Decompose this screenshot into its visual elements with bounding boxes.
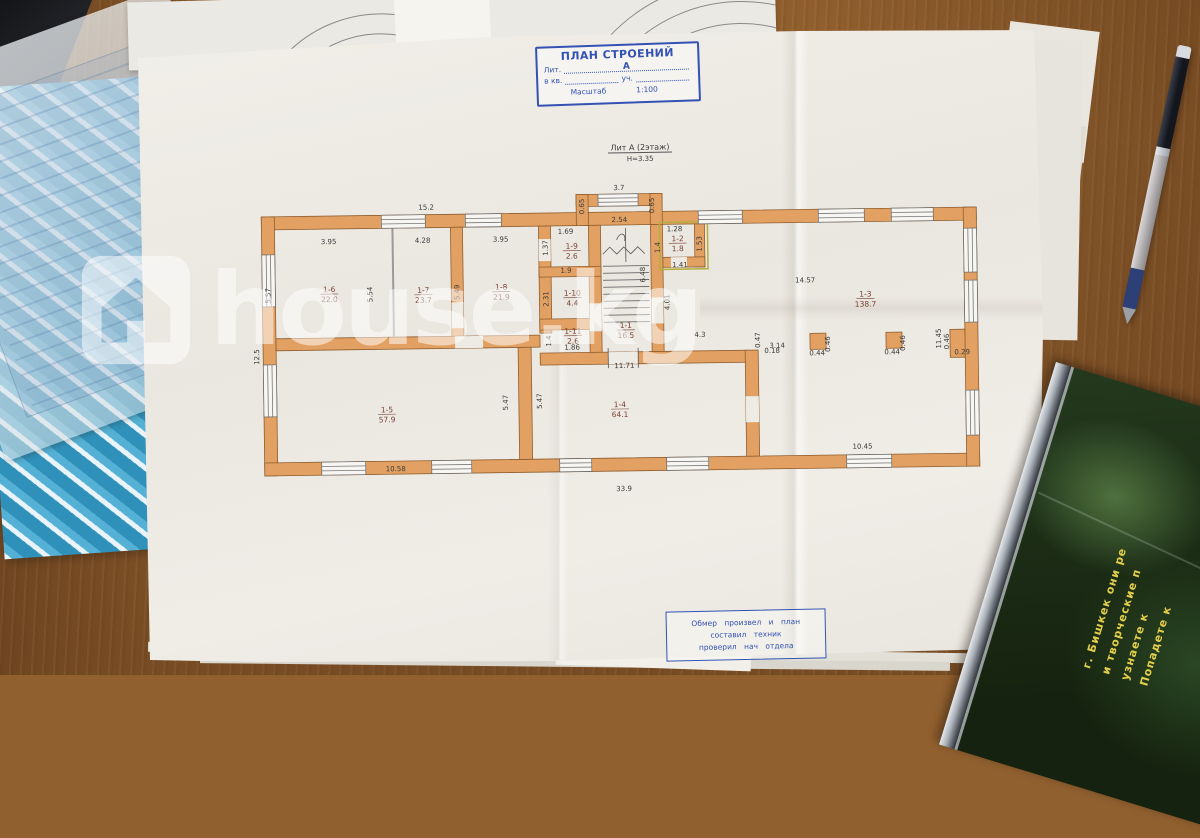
surveyor-line: проверил нач отдела (699, 640, 794, 654)
fold-crease (548, 330, 568, 660)
plan-heading: Лит А (2этаж) Н=3.35 (583, 134, 697, 164)
pen-cap (1157, 56, 1190, 149)
surveyor-block: Обмер произвел и план составил техник пр… (665, 608, 826, 661)
ballpoint-pen (1119, 45, 1192, 326)
fold-crease (700, 296, 1045, 320)
title-block: ПЛАН СТРОЕНИЙ Лит. А в кв. уч. Масштаб 1… (535, 41, 701, 107)
fold-crease (782, 30, 808, 660)
pen-grip (1122, 268, 1144, 310)
uch-value (636, 80, 689, 83)
lit-heading: Лит А (2этаж) (607, 142, 672, 153)
lit-label: Лит. (544, 65, 562, 75)
pen-barrel (1131, 154, 1169, 270)
uch-label: уч. (621, 73, 633, 82)
scale-label: Масштаб (570, 86, 606, 96)
kv-label: в кв. (544, 76, 562, 86)
pen-cone (1119, 307, 1136, 326)
kv-value (565, 82, 618, 85)
cd-cover-text: Попадете кузнаете ки творческие пг. Бишк… (1080, 427, 1200, 687)
photo-of-floor-plan-on-desk: { "colors": { "wall_orange": "#E2A163", … (0, 0, 1200, 675)
scale-value: 1:100 (636, 85, 658, 95)
